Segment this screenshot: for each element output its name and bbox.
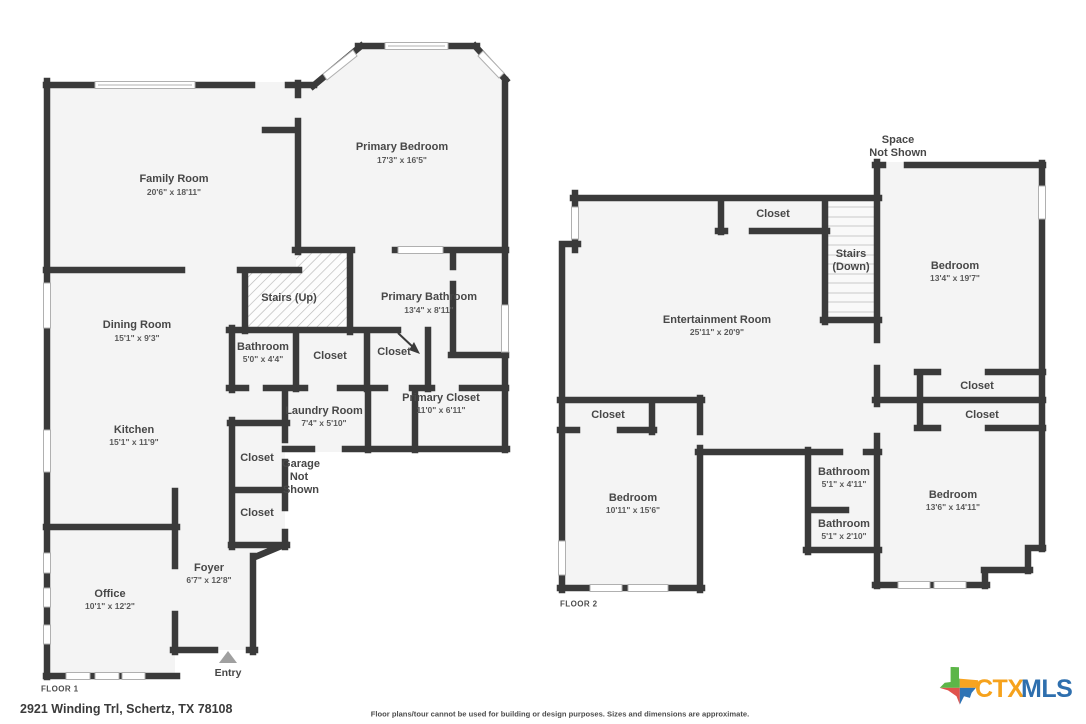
- room-label-closet-left: Closet: [591, 409, 625, 421]
- garage-note-line2: Not: [290, 471, 309, 483]
- floor-plan-svg: Family Room 20'6" x 18'11" Primary Bedro…: [0, 0, 1086, 724]
- room-dims-family-room: 20'6" x 18'11": [147, 187, 201, 197]
- stairs-down-label-line2: (Down): [832, 261, 870, 273]
- logo-ctx-text: CTX: [975, 675, 1024, 703]
- floor-plan-page: Family Room 20'6" x 18'11" Primary Bedro…: [0, 0, 1086, 724]
- stairs-down-label-line1: Stairs: [836, 248, 867, 260]
- room-label-closet-d: Closet: [240, 507, 274, 519]
- room-dims-bedroom-bl: 10'11" x 15'6": [606, 505, 660, 515]
- space-note-line2: Not Shown: [869, 147, 927, 159]
- texas-icon: [938, 666, 980, 708]
- room-label-bedroom-br: Bedroom: [929, 489, 978, 501]
- room-label-closet-top: Closet: [756, 208, 790, 220]
- address-text: 2921 Winding Trl, Schertz, TX 78108: [20, 702, 233, 716]
- room-dims-foyer: 6'7" x 12'8": [186, 575, 231, 585]
- room-label-bedroom-bl: Bedroom: [609, 492, 658, 504]
- room-label-closet-a: Closet: [313, 350, 347, 362]
- room-label-primary-closet: Primary Closet: [402, 392, 480, 404]
- room-dims-bathroom-f2a: 5'1" x 4'11": [822, 479, 867, 489]
- room-label-primary-bathroom: Primary Bathroom: [381, 291, 477, 303]
- room-label-primary-bedroom: Primary Bedroom: [356, 141, 449, 153]
- logo-mls-text: MLS: [1021, 675, 1072, 703]
- floor1-plan: Family Room 20'6" x 18'11" Primary Bedro…: [41, 43, 509, 694]
- room-label-closet-r1: Closet: [960, 380, 994, 392]
- stairs-up-label: Stairs (Up): [261, 292, 317, 304]
- room-dims-laundry: 7'4" x 5'10": [301, 418, 346, 428]
- room-label-laundry: Laundry Room: [285, 405, 363, 417]
- floor2-title: FLOOR 2: [560, 600, 598, 609]
- floor2-plan: Space Not Shown Closet Stairs (Down) Bed…: [559, 134, 1046, 609]
- room-dims-primary-bedroom: 17'3" x 16'5": [377, 155, 427, 165]
- room-dims-primary-closet: 11'0" x 6'11": [417, 405, 466, 415]
- room-label-family-room: Family Room: [139, 173, 208, 185]
- room-dims-bathroom-f2b: 5'1" x 2'10": [821, 531, 866, 541]
- ctxmls-logo: CTX MLS: [938, 666, 1072, 708]
- room-dims-kitchen: 15'1" x 11'9": [109, 437, 158, 447]
- disclaimer-text: Floor plans/tour cannot be used for buil…: [371, 710, 749, 719]
- room-dims-office: 10'1" x 12'2": [85, 601, 135, 611]
- room-label-dining-room: Dining Room: [103, 319, 172, 331]
- room-label-kitchen: Kitchen: [114, 424, 155, 436]
- room-dims-primary-bathroom: 13'4" x 8'11": [404, 305, 453, 315]
- room-label-entertainment: Entertainment Room: [663, 314, 771, 326]
- floor2-footprint: [562, 162, 1042, 588]
- room-label-bedroom-tr: Bedroom: [931, 260, 980, 272]
- room-label-bathroom-1: Bathroom: [237, 341, 289, 353]
- room-label-bathroom-f2a: Bathroom: [818, 466, 870, 478]
- room-dims-entertainment: 25'11" x 20'9": [690, 327, 744, 337]
- entry-label: Entry: [215, 667, 242, 679]
- room-label-closet-b: Closet: [377, 346, 411, 358]
- room-label-closet-c: Closet: [240, 452, 274, 464]
- room-dims-bedroom-br: 13'6" x 14'11": [926, 502, 980, 512]
- room-label-closet-r2: Closet: [965, 409, 999, 421]
- room-label-foyer: Foyer: [194, 562, 225, 574]
- room-dims-dining-room: 15'1" x 9'3": [114, 333, 159, 343]
- entry-arrow-icon: [219, 651, 237, 663]
- space-note-line1: Space: [882, 134, 914, 146]
- room-label-bathroom-f2b: Bathroom: [818, 518, 870, 530]
- garage-note-line3: Shown: [283, 484, 319, 496]
- room-dims-bedroom-tr: 13'4" x 19'7": [930, 273, 980, 283]
- room-dims-bathroom-1: 5'0" x 4'4": [243, 354, 283, 364]
- room-label-office: Office: [94, 588, 125, 600]
- garage-note-line1: Garage: [282, 458, 320, 470]
- floor1-title: FLOOR 1: [41, 685, 79, 694]
